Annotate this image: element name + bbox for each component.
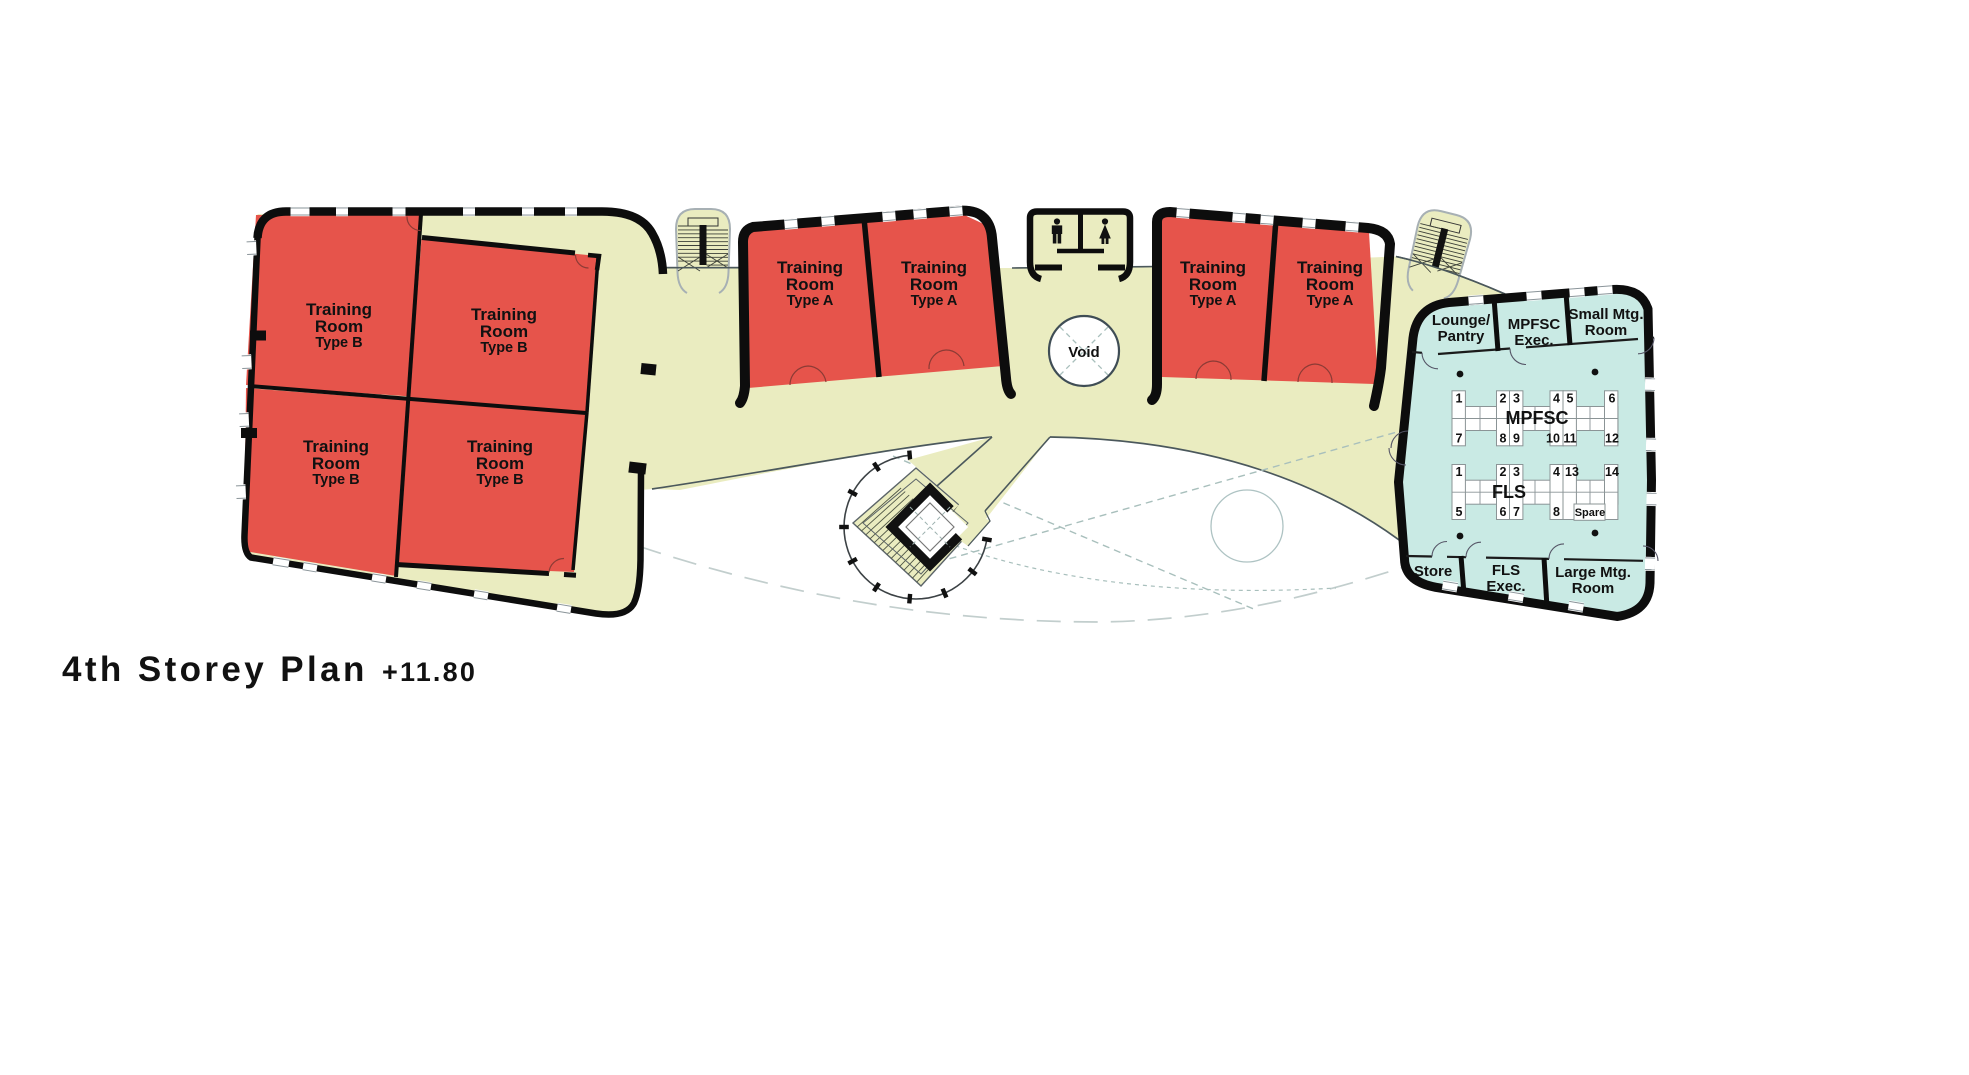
svg-text:Room: Room: [476, 454, 524, 473]
svg-text:Type B: Type B: [476, 472, 523, 488]
svg-text:Room: Room: [786, 275, 834, 294]
svg-text:Small Mtg.: Small Mtg.: [1568, 306, 1643, 323]
svg-text:5: 5: [1456, 505, 1463, 519]
svg-text:Exec.: Exec.: [1486, 578, 1525, 595]
svg-text:Type A: Type A: [1307, 293, 1354, 309]
svg-text:14: 14: [1605, 465, 1619, 479]
svg-text:4: 4: [1553, 391, 1560, 405]
svg-text:Room: Room: [1306, 275, 1354, 294]
svg-text:12: 12: [1605, 431, 1619, 445]
svg-text:Room: Room: [1585, 322, 1628, 339]
svg-text:Store: Store: [1414, 563, 1452, 580]
svg-text:11: 11: [1563, 431, 1576, 445]
svg-text:2: 2: [1500, 465, 1507, 479]
svg-text:Room: Room: [315, 317, 363, 336]
svg-text:6: 6: [1609, 391, 1616, 405]
svg-text:1: 1: [1456, 391, 1463, 405]
svg-text:Type B: Type B: [315, 335, 362, 351]
svg-text:Type B: Type B: [312, 472, 359, 488]
svg-text:8: 8: [1500, 431, 1507, 445]
svg-text:Large Mtg.: Large Mtg.: [1555, 564, 1631, 581]
svg-text:Void: Void: [1068, 344, 1099, 361]
svg-text:Room: Room: [910, 275, 958, 294]
svg-text:13: 13: [1565, 465, 1579, 479]
svg-text:Lounge/: Lounge/: [1432, 312, 1491, 329]
svg-text:7: 7: [1513, 505, 1520, 519]
svg-text:Type A: Type A: [911, 293, 958, 309]
svg-text:4: 4: [1553, 465, 1560, 479]
svg-text:+11.80: +11.80: [382, 657, 477, 687]
svg-text:4th Storey Plan: 4th Storey Plan: [62, 650, 368, 689]
svg-text:MPFSC: MPFSC: [1506, 408, 1569, 428]
svg-text:Type A: Type A: [787, 293, 834, 309]
svg-text:Room: Room: [1189, 275, 1237, 294]
svg-text:3: 3: [1513, 391, 1520, 405]
svg-text:FLS: FLS: [1492, 562, 1520, 579]
svg-text:Room: Room: [1572, 580, 1615, 597]
svg-text:Type B: Type B: [480, 340, 527, 356]
svg-text:Spare: Spare: [1575, 507, 1606, 519]
svg-text:6: 6: [1500, 505, 1507, 519]
svg-text:8: 8: [1553, 505, 1560, 519]
svg-text:3: 3: [1513, 465, 1520, 479]
svg-text:2: 2: [1500, 391, 1507, 405]
svg-text:Room: Room: [312, 454, 360, 473]
svg-text:FLS: FLS: [1492, 482, 1526, 502]
svg-text:MPFSC: MPFSC: [1508, 316, 1561, 333]
svg-text:Exec.: Exec.: [1514, 332, 1553, 349]
svg-text:9: 9: [1513, 431, 1520, 445]
svg-text:1: 1: [1456, 465, 1463, 479]
svg-text:5: 5: [1567, 391, 1574, 405]
svg-text:10: 10: [1546, 431, 1560, 445]
svg-text:7: 7: [1456, 431, 1463, 445]
svg-text:Room: Room: [480, 322, 528, 341]
svg-text:Type A: Type A: [1190, 293, 1237, 309]
svg-text:Pantry: Pantry: [1438, 328, 1485, 345]
